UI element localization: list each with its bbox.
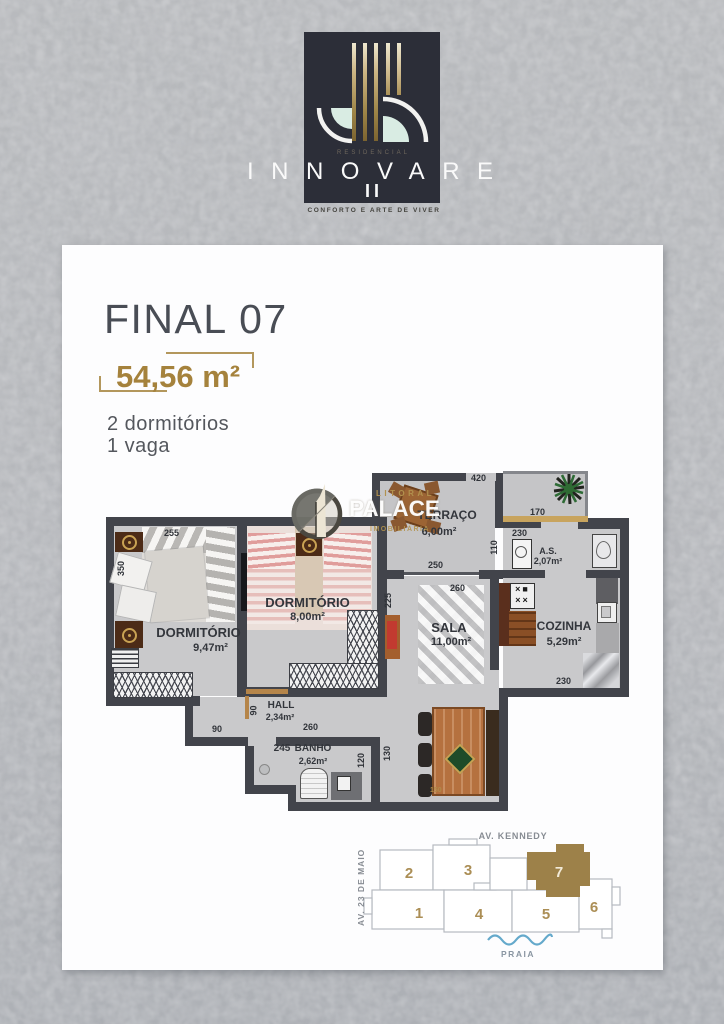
svg-text:7: 7 — [555, 864, 563, 881]
svg-text:2: 2 — [405, 865, 413, 882]
svg-text:4: 4 — [475, 906, 484, 923]
svg-text:6: 6 — [590, 899, 598, 916]
svg-text:5: 5 — [542, 906, 550, 923]
svg-text:AV. KENNEDY: AV. KENNEDY — [479, 831, 548, 841]
svg-text:PRAIA: PRAIA — [501, 949, 535, 959]
svg-text:AV. 23 DE MAIO: AV. 23 DE MAIO — [356, 849, 366, 926]
svg-text:3: 3 — [464, 862, 472, 879]
svg-text:1: 1 — [415, 905, 423, 922]
